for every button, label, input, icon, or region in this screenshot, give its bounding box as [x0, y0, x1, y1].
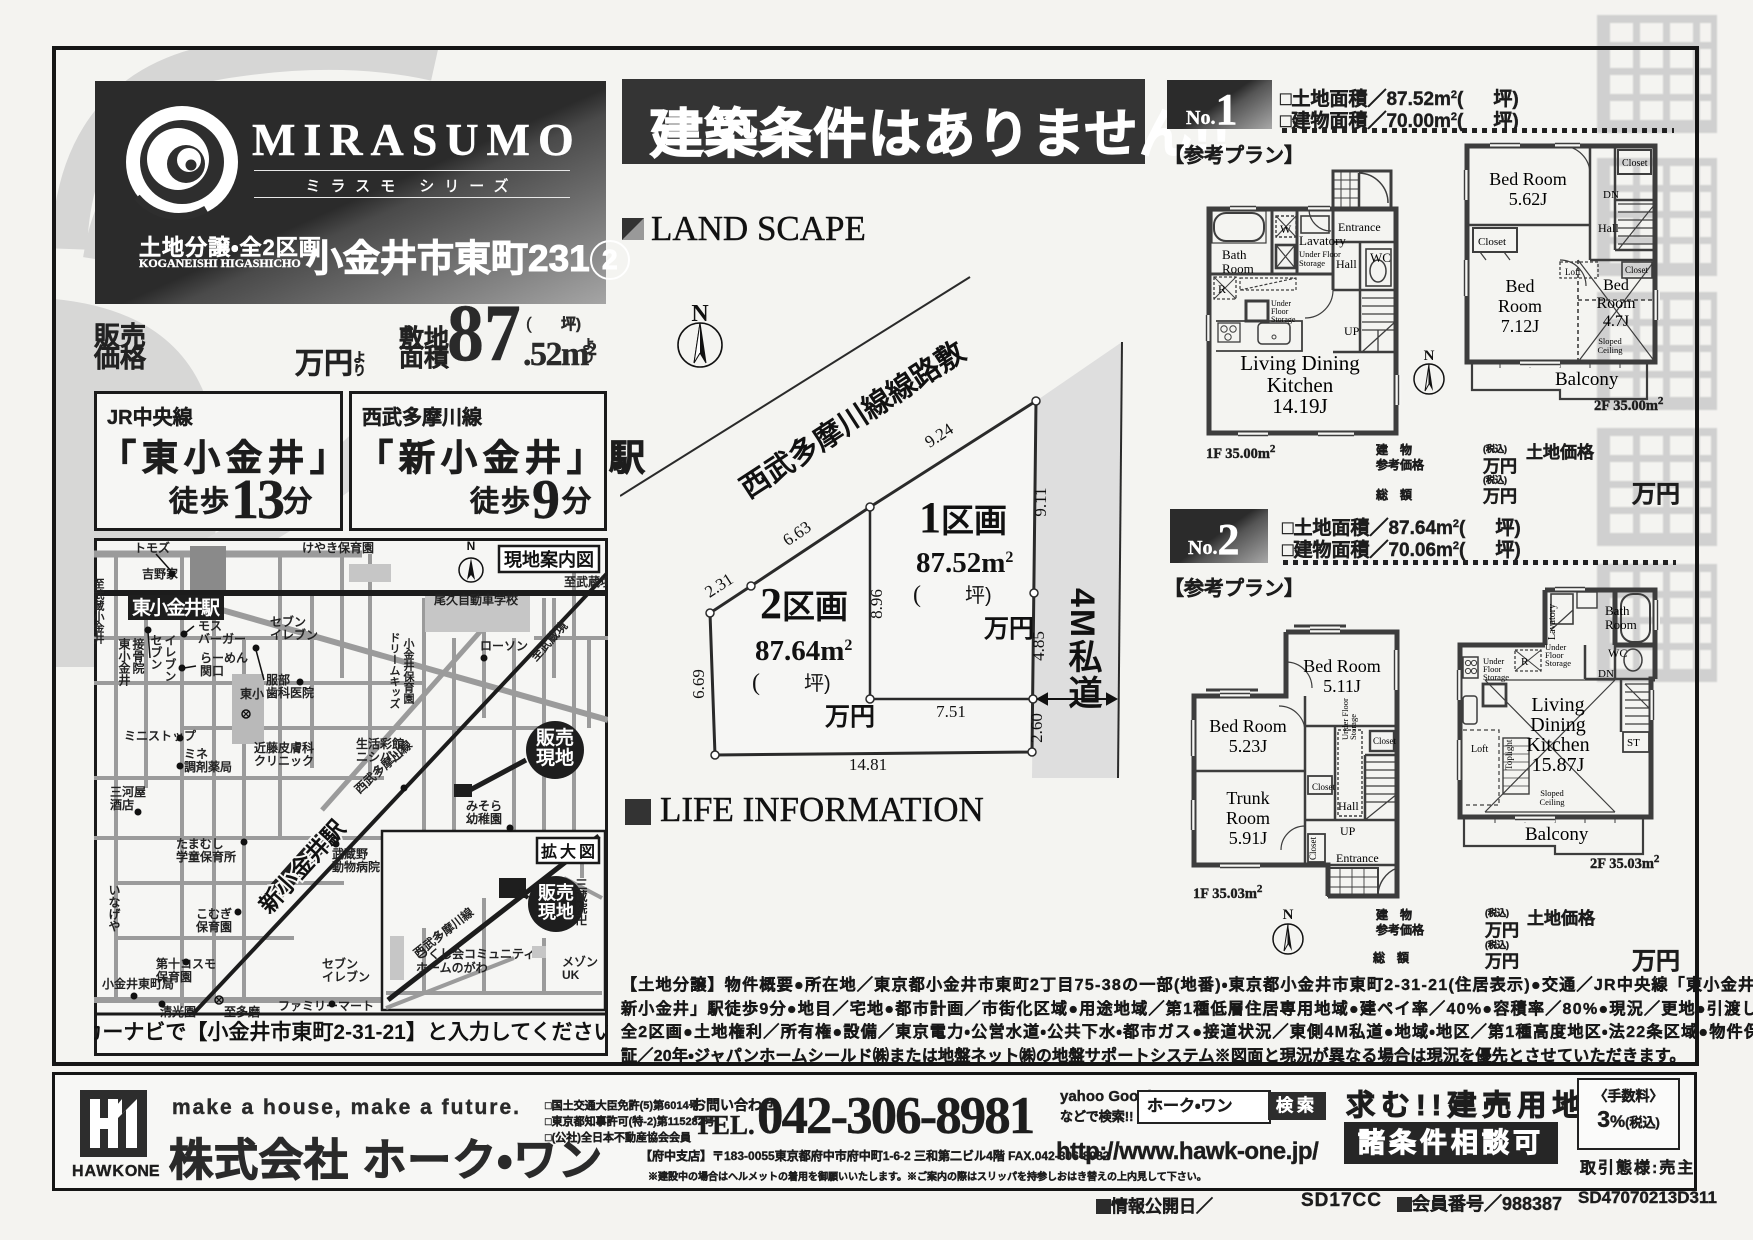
- svg-text:Bed Room: Bed Room: [1209, 716, 1287, 736]
- svg-text:Closet: Closet: [1622, 158, 1648, 169]
- svg-text:Storage: Storage: [1348, 714, 1358, 740]
- svg-text:Hall: Hall: [1336, 257, 1357, 271]
- svg-text:DN: DN: [1598, 668, 1614, 680]
- svg-text:14.19J: 14.19J: [1272, 394, 1327, 418]
- svg-text:DN: DN: [1603, 189, 1619, 201]
- svg-text:15.87J: 15.87J: [1532, 754, 1585, 776]
- svg-text:Closet: Closet: [1312, 782, 1336, 792]
- svg-text:Closet: Closet: [1625, 265, 1649, 275]
- svg-text:Hall: Hall: [1598, 221, 1619, 235]
- svg-text:Room: Room: [1605, 617, 1637, 632]
- svg-text:Entrance: Entrance: [1338, 220, 1381, 234]
- svg-text:Room: Room: [1222, 261, 1254, 276]
- svg-text:Lavatory: Lavatory: [1299, 233, 1346, 248]
- svg-text:5.23J: 5.23J: [1229, 736, 1268, 756]
- svg-text:Bed Room: Bed Room: [1489, 169, 1567, 189]
- svg-text:Balcony: Balcony: [1525, 824, 1589, 845]
- svg-text:W: W: [1280, 222, 1292, 236]
- svg-text:5.91J: 5.91J: [1229, 828, 1268, 848]
- svg-text:4.7J: 4.7J: [1603, 313, 1629, 330]
- svg-text:Room: Room: [1596, 295, 1636, 312]
- svg-text:ST: ST: [1627, 737, 1640, 749]
- svg-text:Storage: Storage: [1483, 672, 1509, 682]
- svg-text:Closet: Closet: [1373, 736, 1397, 746]
- svg-text:Toplight: Toplight: [1504, 739, 1514, 770]
- svg-text:N: N: [1424, 348, 1435, 364]
- svg-text:Storage: Storage: [1545, 658, 1571, 668]
- svg-text:Dining: Dining: [1530, 714, 1586, 736]
- svg-text:Bed Room: Bed Room: [1303, 656, 1381, 676]
- svg-text:Bed: Bed: [1603, 277, 1629, 294]
- svg-text:Entrance: Entrance: [1336, 851, 1379, 865]
- svg-text:Living Dining: Living Dining: [1240, 351, 1360, 375]
- svg-text:Loft: Loft: [1565, 267, 1581, 277]
- svg-text:R: R: [1521, 656, 1529, 668]
- svg-text:Closet: Closet: [1308, 836, 1318, 860]
- svg-text:Loft: Loft: [1471, 744, 1488, 755]
- svg-text:Kitchen: Kitchen: [1526, 734, 1589, 756]
- svg-text:Lavatory: Lavatory: [1547, 604, 1558, 640]
- svg-text:Bed: Bed: [1506, 276, 1535, 296]
- svg-text:Ceiling: Ceiling: [1597, 345, 1623, 355]
- svg-text:Storage: Storage: [1271, 315, 1296, 324]
- svg-text:R: R: [1218, 282, 1226, 296]
- svg-text:Hall: Hall: [1338, 799, 1359, 813]
- svg-text:Bath: Bath: [1605, 603, 1630, 618]
- svg-text:Living: Living: [1531, 694, 1584, 716]
- svg-text:5.62J: 5.62J: [1509, 189, 1548, 209]
- svg-text:Balcony: Balcony: [1555, 369, 1619, 390]
- svg-text:UP: UP: [1340, 824, 1356, 838]
- svg-text:Storage: Storage: [1299, 258, 1325, 268]
- svg-text:WC: WC: [1608, 646, 1627, 660]
- svg-text:Trunk: Trunk: [1226, 788, 1269, 808]
- svg-text:Room: Room: [1498, 296, 1542, 316]
- svg-text:Ceiling: Ceiling: [1539, 797, 1565, 807]
- svg-text:WC: WC: [1370, 250, 1391, 265]
- svg-text:UP: UP: [1344, 324, 1360, 338]
- svg-text:Room: Room: [1226, 808, 1270, 828]
- svg-text:Closet: Closet: [1478, 236, 1506, 248]
- svg-text:7.12J: 7.12J: [1501, 316, 1540, 336]
- svg-text:N: N: [1283, 907, 1294, 923]
- svg-text:Bath: Bath: [1222, 247, 1247, 262]
- svg-text:5.11J: 5.11J: [1323, 676, 1361, 696]
